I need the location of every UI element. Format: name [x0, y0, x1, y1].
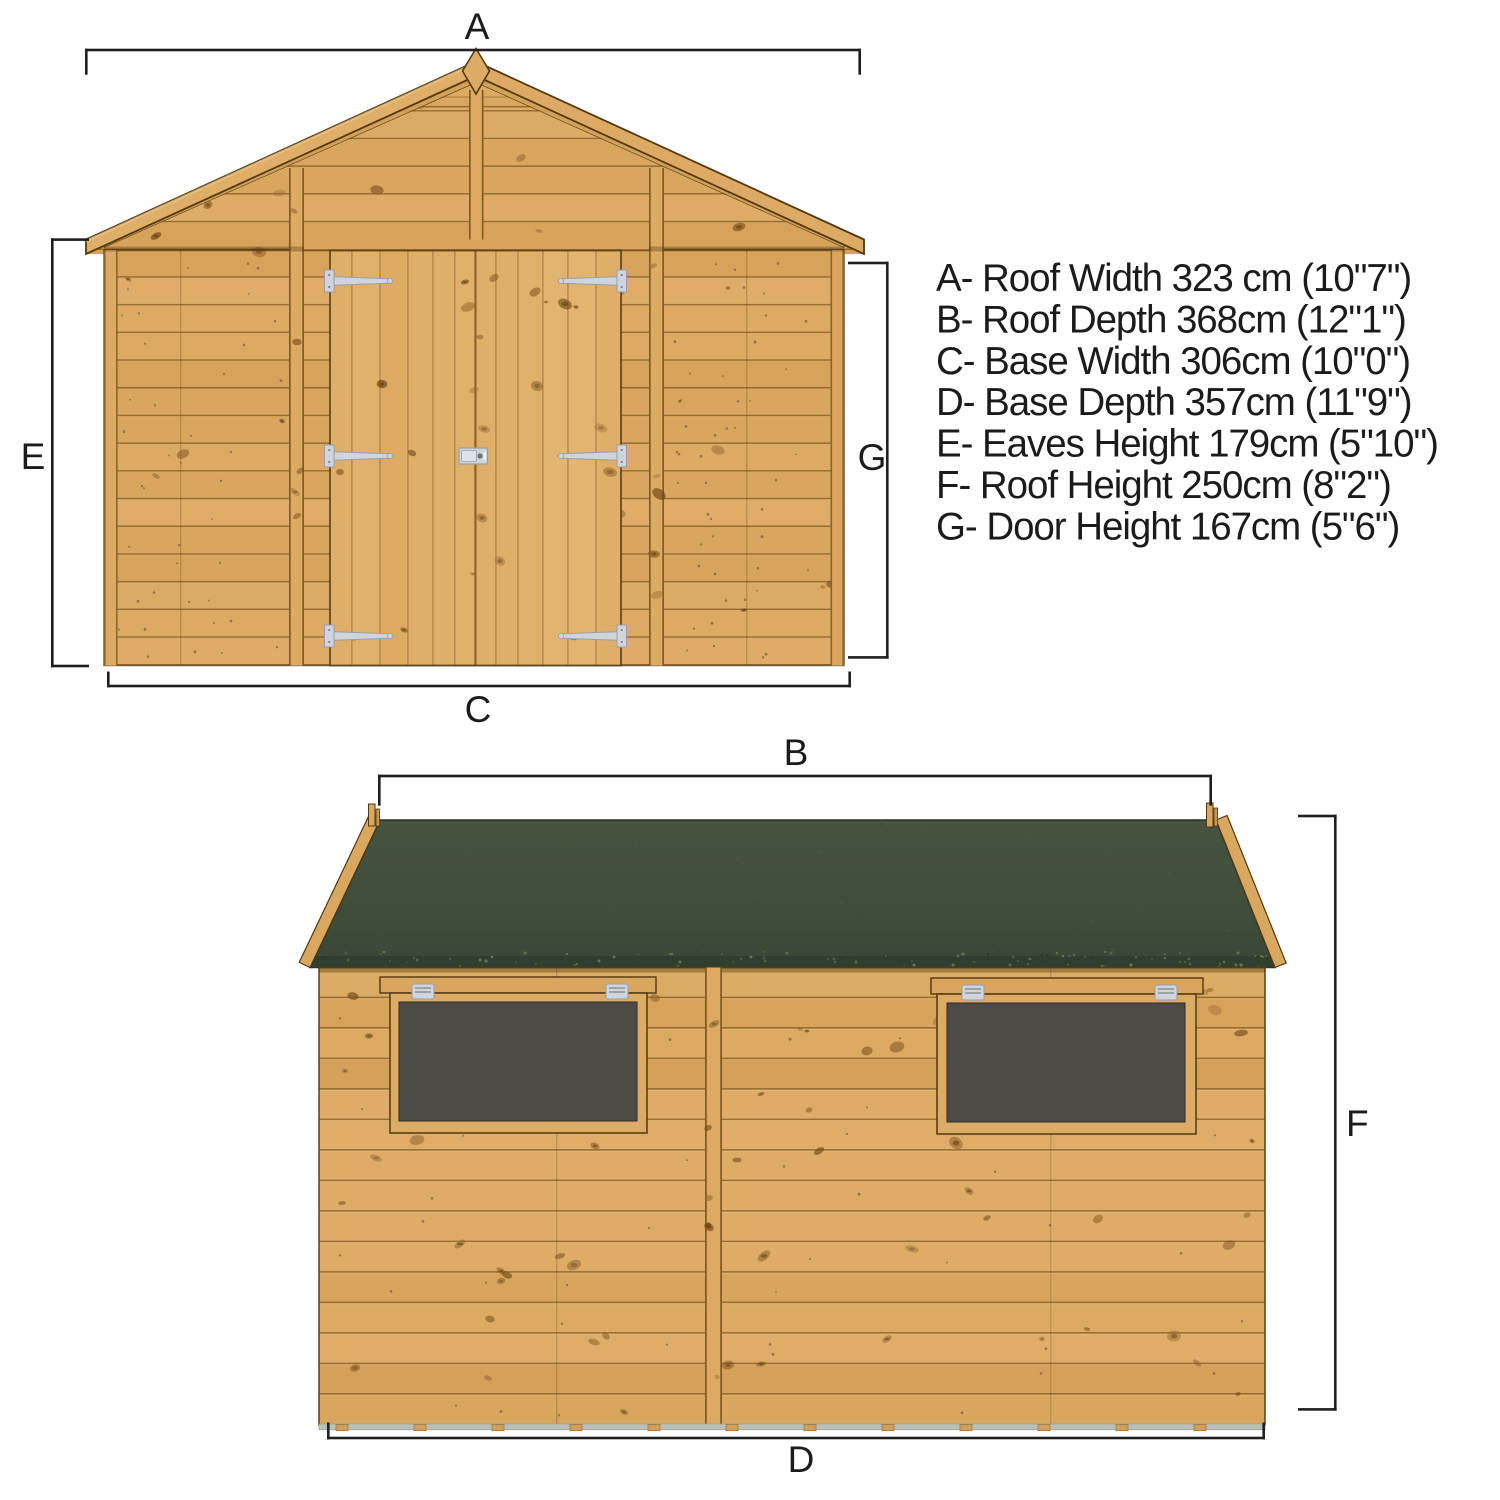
svg-text:B: B: [784, 732, 809, 773]
svg-text:D: D: [788, 1439, 815, 1480]
svg-text:D- Base Depth 357cm (11"9"): D- Base Depth 357cm (11"9"): [936, 381, 1411, 424]
svg-text:F: F: [1346, 1103, 1369, 1144]
svg-text:A- Roof Width 323 cm (10"7"): A- Roof Width 323 cm (10"7"): [936, 257, 1411, 300]
svg-text:G- Door Height 167cm (5"6"): G- Door Height 167cm (5"6"): [936, 505, 1399, 548]
svg-text:C: C: [465, 689, 492, 730]
svg-text:B- Roof Depth 368cm (12"1"): B- Roof Depth 368cm (12"1"): [936, 298, 1406, 341]
svg-text:G: G: [858, 437, 887, 478]
svg-text:C- Base Width 306cm (10"0"): C- Base Width 306cm (10"0"): [936, 340, 1410, 383]
svg-text:F- Roof Height 250cm (8"2"): F- Roof Height 250cm (8"2"): [936, 464, 1391, 507]
svg-text:A: A: [465, 6, 490, 47]
svg-text:E- Eaves Height 179cm (5"10"): E- Eaves Height 179cm (5"10"): [936, 423, 1438, 466]
svg-text:E: E: [21, 436, 46, 477]
